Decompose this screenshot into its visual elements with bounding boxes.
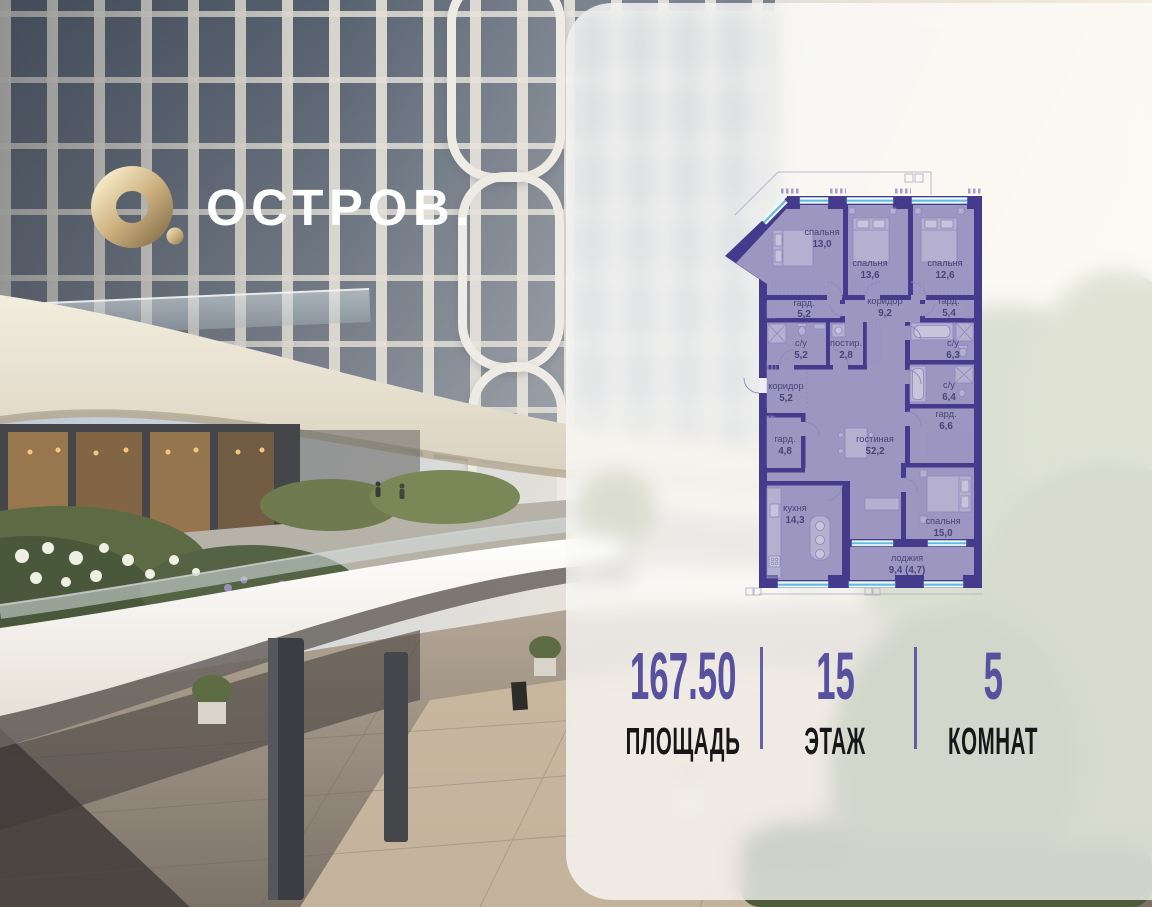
room-area-living: 52,2 [865, 446, 885, 457]
room-label-wardrobe-3: гард. [935, 409, 956, 419]
room-area-bedroom-4: 15,0 [933, 528, 953, 539]
room-area-loggia: 9,4 (4,7) [889, 565, 926, 576]
room-label-bath-3: с/у [943, 380, 955, 390]
stat-rooms: 5 КОМНАТ [910, 643, 1077, 761]
room-area-wardrobe-3: 6,6 [939, 421, 953, 432]
room-label-wardrobe-1: гард. [793, 298, 814, 308]
logo-ring-icon [104, 179, 161, 236]
stat-area-label: ПЛОЩАДЬ [626, 723, 741, 761]
room-label-bath-1: с/у [795, 338, 807, 348]
room-label-bedroom-4: спальня [925, 516, 960, 526]
room-area-bath-2: 6,3 [946, 350, 960, 361]
stat-floor-value: 15 [816, 643, 855, 710]
floor-plan[interactable]: спальня 13,0 спальня 13,6 спальня 12,6 г… [715, 160, 1025, 600]
room-area-corridor-1: 9,2 [878, 308, 892, 319]
logo-wordmark: ОСТРОВ. [206, 179, 475, 236]
room-area-wardrobe-2: 5,4 [942, 308, 956, 319]
room-area-bedroom-3: 12,6 [935, 270, 955, 281]
room-label-bedroom-2: спальня [852, 258, 887, 268]
room-label-bedroom-3: спальня [927, 258, 962, 268]
room-area-kitchen: 14,3 [785, 515, 805, 526]
logo-dot-icon [167, 228, 184, 245]
stat-area-value: 167.50 [630, 643, 737, 710]
room-label-wardrobe-2: гард. [938, 296, 959, 306]
stat-floor-label: ЭТАЖ [804, 723, 865, 761]
room-label-corridor-1: коридор [867, 296, 902, 306]
room-area-wardrobe-4: 4,8 [778, 446, 792, 457]
stat-rooms-label: КОМНАТ [948, 723, 1038, 761]
room-label-bath-2: с/у [947, 338, 959, 348]
room-label-kitchen: кухня [783, 503, 807, 513]
stat-rooms-value: 5 [983, 643, 1002, 710]
listing-card: ОСТРОВ. [0, 0, 1152, 907]
room-label-living: гостиная [856, 434, 894, 444]
room-area-bath-1: 5,2 [794, 350, 808, 361]
room-area-corridor-2: 5,2 [779, 393, 793, 404]
ostrov-logo: ОСТРОВ. [80, 152, 510, 267]
room-label-laundry: постир. [830, 338, 862, 348]
room-label-wardrobe-4: гард. [774, 434, 795, 444]
room-area-bath-3: 6,4 [942, 392, 956, 403]
room-label-loggia: лоджия [891, 553, 923, 563]
room-area-bedroom-1: 13,0 [812, 239, 832, 250]
room-area-bedroom-2: 13,6 [860, 270, 880, 281]
stats-divider [760, 647, 763, 749]
room-area-laundry: 2,8 [839, 350, 853, 361]
stat-area: 167.50 ПЛОЩАДЬ [577, 643, 790, 761]
room-area-wardrobe-1: 5,2 [797, 309, 811, 320]
room-label-corridor-2: коридор [768, 381, 803, 391]
room-label-bedroom-1: спальня [804, 227, 839, 237]
stat-floor: 15 ЭТАЖ [778, 643, 892, 761]
